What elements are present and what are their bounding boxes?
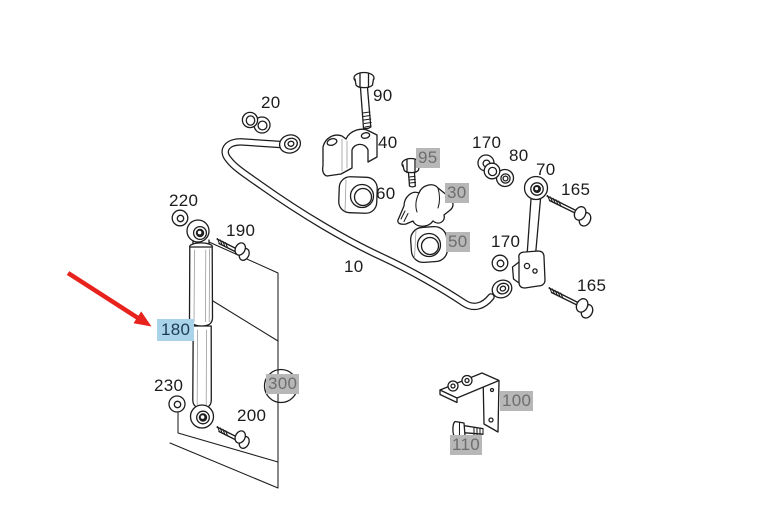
callout-100[interactable]: 100 bbox=[500, 391, 533, 411]
callout-230[interactable]: 230 bbox=[154, 376, 183, 396]
bushing-20-drawing bbox=[242, 112, 270, 133]
callout-95[interactable]: 95 bbox=[416, 148, 440, 168]
callout-80[interactable]: 80 bbox=[509, 146, 529, 166]
bushing-60-drawing bbox=[338, 176, 377, 213]
diagram-line-art bbox=[0, 0, 766, 511]
callout-10[interactable]: 10 bbox=[344, 257, 364, 277]
bracket-100-drawing bbox=[440, 373, 499, 432]
callout-60[interactable]: 60 bbox=[376, 184, 396, 204]
washer-230-drawing bbox=[169, 396, 185, 412]
callout-220[interactable]: 220 bbox=[169, 191, 198, 211]
callout-50[interactable]: 50 bbox=[446, 232, 470, 252]
clamp-40-drawing bbox=[323, 129, 377, 176]
callout-170-lower[interactable]: 170 bbox=[491, 232, 520, 252]
bolt-190-drawing bbox=[217, 239, 253, 262]
callout-180-selected[interactable]: 180 bbox=[157, 319, 194, 341]
bolt-200-drawing bbox=[217, 427, 253, 450]
callout-20[interactable]: 20 bbox=[261, 93, 281, 113]
callout-70[interactable]: 70 bbox=[536, 160, 556, 180]
bushings-80-drawing bbox=[484, 163, 513, 186]
parts-diagram: 20 90 40 95 170 80 70 165 60 30 50 170 1… bbox=[0, 0, 766, 511]
bolt-165-upper-drawing bbox=[547, 196, 594, 228]
selection-arrow bbox=[68, 273, 152, 327]
panel-outline-drawing bbox=[170, 242, 278, 488]
callout-40[interactable]: 40 bbox=[378, 133, 398, 153]
callout-200[interactable]: 200 bbox=[237, 406, 266, 426]
washer-170-lower-drawing bbox=[492, 255, 508, 271]
callout-165-upper[interactable]: 165 bbox=[561, 180, 590, 200]
callout-110[interactable]: 110 bbox=[450, 435, 482, 455]
callout-30[interactable]: 30 bbox=[445, 183, 469, 203]
callout-190[interactable]: 190 bbox=[226, 221, 255, 241]
bolt-90-drawing bbox=[354, 73, 374, 129]
washer-220-drawing bbox=[172, 210, 188, 226]
callout-165-lower[interactable]: 165 bbox=[577, 276, 606, 296]
callout-300[interactable]: 300 bbox=[266, 374, 299, 394]
callout-90[interactable]: 90 bbox=[373, 86, 393, 106]
callout-170-upper[interactable]: 170 bbox=[472, 133, 501, 153]
bushing-50-drawing bbox=[410, 226, 448, 263]
